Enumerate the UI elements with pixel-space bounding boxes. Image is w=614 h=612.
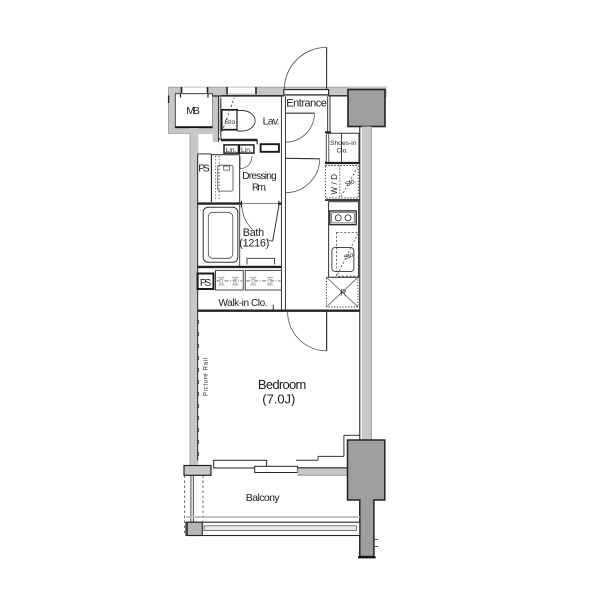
svg-text:PS: PS xyxy=(200,278,212,289)
svg-text:Lin.: Lin. xyxy=(241,147,252,154)
svg-text:Bedroom: Bedroom xyxy=(258,377,307,392)
svg-text:(1216): (1216) xyxy=(239,237,269,249)
svg-text:(7.0J): (7.0J) xyxy=(262,391,295,406)
svg-text:PS: PS xyxy=(198,163,210,175)
svg-text:W/D: W/D xyxy=(330,174,339,195)
svg-text:Lin.: Lin. xyxy=(226,147,237,154)
svg-text:Picture Rail: Picture Rail xyxy=(203,358,209,396)
svg-text:MB: MB xyxy=(186,105,200,117)
svg-text:Sto: Sto xyxy=(225,119,236,126)
svg-text:Walk-in Clo.: Walk-in Clo. xyxy=(219,298,268,309)
svg-text:R: R xyxy=(340,288,346,298)
svg-text:Clo.: Clo. xyxy=(337,147,349,154)
svg-text:Balcony: Balcony xyxy=(246,492,281,504)
svg-text:Entrance: Entrance xyxy=(286,97,327,109)
svg-text:Dressing: Dressing xyxy=(242,171,277,182)
svg-text:Rm.: Rm. xyxy=(252,183,267,194)
svg-text:Shoes-in: Shoes-in xyxy=(330,140,357,147)
svg-text:Lav.: Lav. xyxy=(263,115,280,127)
